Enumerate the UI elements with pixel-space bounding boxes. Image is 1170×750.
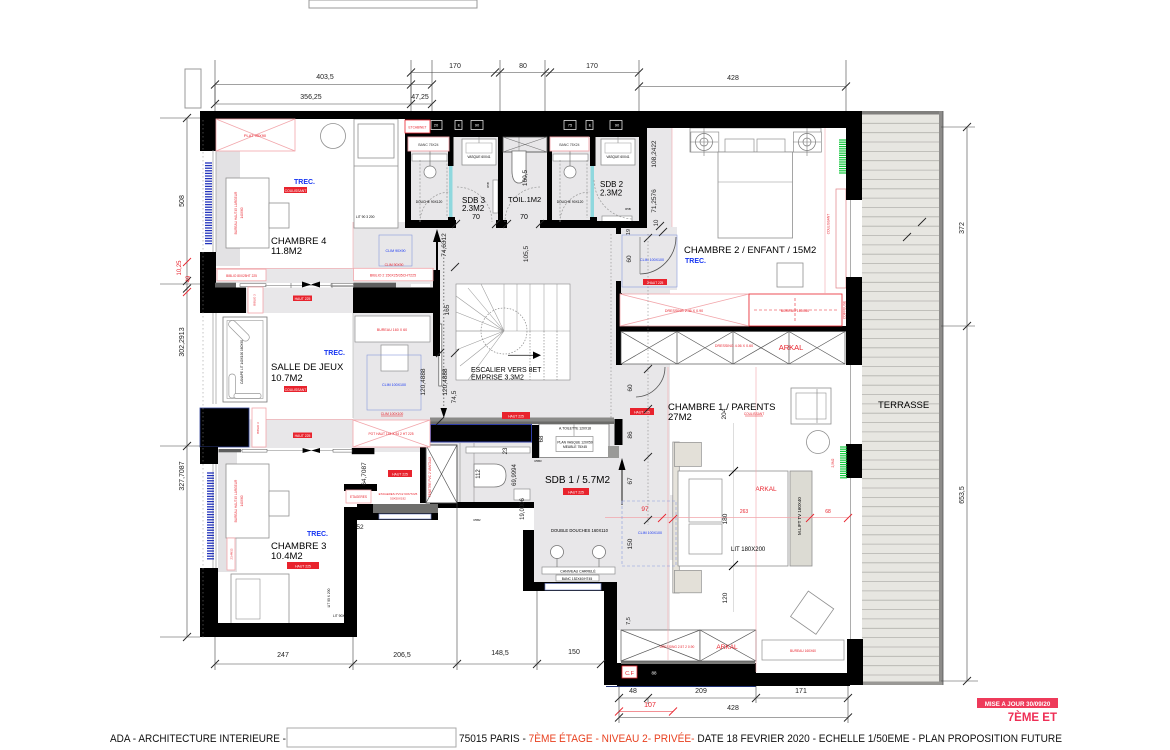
svg-text:108,2422: 108,2422 bbox=[651, 140, 658, 167]
svg-text:2,5M2: 2,5M2 bbox=[831, 458, 835, 467]
svg-text:BUREAU 160X60: BUREAU 160X60 bbox=[790, 649, 816, 653]
svg-text:A.TOILETTE 120X18: A.TOILETTE 120X18 bbox=[559, 427, 591, 431]
svg-text:E: E bbox=[458, 123, 461, 128]
svg-text:BUREAU HAUT45 LARGEUR: BUREAU HAUT45 LARGEUR bbox=[234, 191, 238, 234]
svg-text:112: 112 bbox=[476, 469, 482, 479]
svg-text:68: 68 bbox=[825, 509, 831, 515]
svg-text:DOUCHE 90X120: DOUCHE 90X120 bbox=[416, 200, 443, 204]
svg-text:2.3M2: 2.3M2 bbox=[462, 204, 485, 213]
svg-text:DRESSING 4.06 X 0.60: DRESSING 4.06 X 0.60 bbox=[715, 344, 753, 348]
svg-text:CLIM 100X100: CLIM 100X100 bbox=[381, 412, 404, 416]
svg-text:247: 247 bbox=[277, 652, 289, 659]
svg-text:69,9994: 69,9994 bbox=[512, 464, 518, 486]
svg-text:HAUT 225: HAUT 225 bbox=[568, 491, 584, 495]
svg-text:150: 150 bbox=[568, 649, 580, 656]
svg-text:LIT 90X200: LIT 90X200 bbox=[333, 614, 350, 618]
svg-text:372: 372 bbox=[959, 222, 966, 234]
svg-text:653,5: 653,5 bbox=[959, 486, 966, 504]
svg-text:CLIM 100X100: CLIM 100X100 bbox=[638, 531, 662, 535]
svg-text:FENETRE PVC 2 VANTAUX: FENETRE PVC 2 VANTAUX bbox=[428, 456, 432, 497]
svg-text:MEUBLE 75X45: MEUBLE 75X45 bbox=[563, 445, 587, 449]
svg-text:90: 90 bbox=[615, 123, 620, 128]
svg-text:52: 52 bbox=[356, 524, 364, 531]
svg-text:74,5: 74,5 bbox=[451, 390, 458, 403]
svg-text:BANC 152X40/HT45: BANC 152X40/HT45 bbox=[562, 577, 593, 581]
svg-text:HAUT 225: HAUT 225 bbox=[295, 297, 311, 301]
svg-text:PLAN VASQUE 120X50: PLAN VASQUE 120X50 bbox=[557, 441, 592, 445]
svg-text:ARKAL: ARKAL bbox=[779, 343, 804, 352]
svg-text:TREC.: TREC. bbox=[324, 350, 345, 357]
svg-text:DRESSING 2.46 X 0.90: DRESSING 2.46 X 0.90 bbox=[665, 309, 703, 313]
svg-text:ETAGERES PVC2 60X/T225: ETAGERES PVC2 60X/T225 bbox=[379, 492, 418, 496]
svg-text:50X50X192: 50X50X192 bbox=[390, 497, 406, 501]
svg-text:E: E bbox=[589, 123, 592, 128]
svg-text:120,4888: 120,4888 bbox=[442, 368, 449, 395]
svg-text:ADA - ARCHITECTURE INTERIEURE: ADA - ARCHITECTURE INTERIEURE - bbox=[110, 733, 286, 745]
svg-text:508: 508 bbox=[179, 195, 186, 207]
svg-text:BUREAU HAUT45 LARGEUR: BUREAU HAUT45 LARGEUR bbox=[234, 479, 238, 522]
svg-text:140X60: 140X60 bbox=[240, 207, 244, 218]
svg-text:VASQUE 60X41: VASQUE 60X41 bbox=[606, 155, 629, 159]
svg-text:2HAUT 225: 2HAUT 225 bbox=[647, 281, 664, 285]
svg-text:428: 428 bbox=[727, 705, 739, 712]
svg-text:120,4888: 120,4888 bbox=[420, 368, 427, 395]
svg-text:BUREAU 160X60: BUREAU 160X60 bbox=[781, 309, 809, 313]
svg-text:105,5: 105,5 bbox=[523, 245, 530, 262]
svg-text:60: 60 bbox=[627, 384, 634, 392]
svg-text:90: 90 bbox=[475, 123, 480, 128]
svg-text:HAUT 225: HAUT 225 bbox=[295, 565, 311, 569]
svg-text:SDB 1 / 5.7M2: SDB 1 / 5.7M2 bbox=[545, 475, 610, 486]
svg-text:10.7M2: 10.7M2 bbox=[271, 373, 303, 384]
svg-text:BIBLIO 3: BIBLIO 3 bbox=[253, 294, 257, 306]
svg-text:EMPRISE 3.3M2: EMPRISE 3.3M2 bbox=[471, 375, 524, 382]
svg-text:27M2: 27M2 bbox=[668, 412, 692, 423]
svg-text:BUREAU 160 X 60: BUREAU 160 X 60 bbox=[377, 328, 407, 332]
svg-text:170: 170 bbox=[586, 63, 598, 70]
svg-text:150: 150 bbox=[627, 538, 634, 549]
svg-text:BIBLIO 80X25HT 225: BIBLIO 80X25HT 225 bbox=[226, 274, 257, 278]
svg-text:20: 20 bbox=[434, 123, 439, 128]
svg-text:R5B: R5B bbox=[625, 207, 631, 211]
svg-text:49: 49 bbox=[186, 275, 192, 282]
svg-text:CANAPE LIT 140X190 160X90: CANAPE LIT 140X190 160X90 bbox=[240, 340, 244, 384]
svg-text:HAUT 225: HAUT 225 bbox=[295, 434, 311, 438]
svg-text:DOUBLE DOUCHES 160X110: DOUBLE DOUCHES 160X110 bbox=[551, 528, 609, 533]
svg-text:ESCALIER VERS 8ET: ESCALIER VERS 8ET bbox=[471, 367, 542, 374]
svg-text:428: 428 bbox=[727, 75, 739, 82]
svg-text:74,6312: 74,6312 bbox=[441, 233, 448, 257]
svg-text:CLIM 90X90: CLIM 90X90 bbox=[386, 249, 406, 253]
svg-text:302,2913: 302,2913 bbox=[179, 327, 186, 356]
svg-text:10: 10 bbox=[654, 219, 660, 226]
svg-text:CLIM 100X100: CLIM 100X100 bbox=[640, 258, 664, 262]
svg-text:86: 86 bbox=[627, 431, 634, 439]
svg-text:120: 120 bbox=[722, 592, 729, 603]
svg-text:403,5: 403,5 bbox=[316, 74, 334, 81]
svg-text:19: 19 bbox=[626, 229, 632, 235]
svg-text:COIFFEUSE: COIFFEUSE bbox=[843, 301, 847, 319]
svg-text:356,25: 356,25 bbox=[300, 94, 322, 101]
svg-text:10,25: 10,25 bbox=[177, 260, 183, 276]
svg-text:CLIM 90X90: CLIM 90X90 bbox=[385, 263, 404, 267]
svg-text:67: 67 bbox=[627, 477, 634, 485]
svg-text:BANC 75X24: BANC 75X24 bbox=[559, 143, 579, 147]
svg-text:107: 107 bbox=[644, 702, 656, 709]
svg-text:R5B: R5B bbox=[486, 182, 490, 188]
svg-text:2.3M2: 2.3M2 bbox=[600, 189, 623, 198]
svg-text:75: 75 bbox=[568, 123, 573, 128]
svg-text:70: 70 bbox=[472, 214, 480, 221]
svg-text:R5B3: R5B3 bbox=[535, 459, 542, 463]
svg-text:140X60: 140X60 bbox=[240, 495, 244, 506]
svg-text:CHAMBRE 2 / ENFANT / 15M2: CHAMBRE 2 / ENFANT / 15M2 bbox=[684, 245, 816, 256]
svg-text:327,7087: 327,7087 bbox=[179, 461, 186, 490]
svg-text:19,0006: 19,0006 bbox=[520, 498, 526, 520]
svg-text:HAUT 225: HAUT 225 bbox=[634, 411, 650, 415]
svg-text:204: 204 bbox=[721, 408, 728, 419]
svg-text:HAUT 225: HAUT 225 bbox=[508, 415, 524, 419]
svg-text:SALLE DE JEUX: SALLE DE JEUX bbox=[271, 362, 344, 373]
svg-text:60: 60 bbox=[626, 255, 633, 263]
svg-text:70: 70 bbox=[520, 214, 528, 221]
svg-text:23,4M13: 23,4M13 bbox=[230, 548, 234, 559]
svg-text:10.4M2: 10.4M2 bbox=[271, 551, 303, 562]
svg-text:TREC.: TREC. bbox=[294, 179, 315, 186]
svg-text:75015 PARIS - 7ÈME ÉTAGE - NIV: 75015 PARIS - 7ÈME ÉTAGE - NIVEAU 2- PRI… bbox=[459, 732, 1062, 745]
svg-text:R5B2: R5B2 bbox=[474, 518, 481, 522]
svg-text:C.F: C.F bbox=[625, 671, 635, 677]
svg-text:171: 171 bbox=[795, 688, 807, 695]
svg-text:CANIVEAU CARRELÉ: CANIVEAU CARRELÉ bbox=[560, 569, 596, 574]
svg-text:180: 180 bbox=[722, 513, 729, 524]
svg-text:80: 80 bbox=[519, 63, 527, 70]
svg-text:48: 48 bbox=[629, 688, 637, 695]
svg-text:HAUT 225: HAUT 225 bbox=[392, 473, 408, 477]
svg-text:BANC 75X24: BANC 75X24 bbox=[418, 143, 438, 147]
svg-text:170: 170 bbox=[449, 63, 461, 70]
svg-text:68: 68 bbox=[539, 435, 545, 442]
svg-text:263: 263 bbox=[740, 509, 749, 515]
svg-text:64,7087: 64,7087 bbox=[361, 462, 368, 486]
svg-text:ETAGERES: ETAGERES bbox=[350, 495, 367, 499]
svg-text:148,5: 148,5 bbox=[491, 650, 509, 657]
svg-text:BIBLIO 2 150X25/35CHT225: BIBLIO 2 150X25/35CHT225 bbox=[370, 274, 416, 278]
svg-text:ETCABINET: ETCABINET bbox=[409, 126, 427, 130]
svg-text:TERRASSE: TERRASSE bbox=[878, 400, 929, 411]
svg-text:160,5: 160,5 bbox=[522, 169, 529, 186]
svg-text:LIT 90 3 200: LIT 90 3 200 bbox=[356, 215, 375, 219]
svg-text:ARKAL: ARKAL bbox=[755, 486, 777, 493]
svg-text:VASQUE 60X41: VASQUE 60X41 bbox=[467, 155, 490, 159]
svg-text:47,25: 47,25 bbox=[411, 94, 429, 101]
svg-text:7ÈME ET: 7ÈME ET bbox=[1008, 711, 1057, 724]
svg-text:11.8M2: 11.8M2 bbox=[271, 246, 302, 257]
svg-text:7,5: 7,5 bbox=[626, 617, 632, 625]
svg-text:ARKAL: ARKAL bbox=[716, 644, 738, 651]
svg-text:CLIM 100X100: CLIM 100X100 bbox=[382, 383, 406, 387]
svg-text:209: 209 bbox=[695, 688, 707, 695]
svg-text:TREC.: TREC. bbox=[307, 531, 328, 538]
svg-text:23: 23 bbox=[503, 447, 509, 454]
svg-text:PLAT 90X90: PLAT 90X90 bbox=[244, 133, 267, 138]
svg-text:MISE A JOUR 30/09/20: MISE A JOUR 30/09/20 bbox=[985, 701, 1051, 708]
svg-text:DOUCHE 90X120: DOUCHE 90X120 bbox=[557, 200, 584, 204]
svg-text:TREC.: TREC. bbox=[685, 258, 706, 265]
svg-text:COULISSANT: COULISSANT bbox=[285, 388, 307, 392]
svg-text:88: 88 bbox=[651, 671, 657, 676]
svg-text:206,5: 206,5 bbox=[393, 652, 411, 659]
svg-text:71,2576: 71,2576 bbox=[651, 189, 658, 213]
svg-text:LIT 180X200: LIT 180X200 bbox=[731, 547, 766, 553]
svg-text:COULISSANT: COULISSANT bbox=[827, 214, 831, 234]
svg-text:M.LIFT TV 160X40: M.LIFT TV 160X40 bbox=[797, 497, 802, 535]
svg-text:LIT 90 X 200: LIT 90 X 200 bbox=[327, 588, 331, 607]
svg-text:DRESSING 2.57 2 0.90: DRESSING 2.57 2 0.90 bbox=[660, 645, 695, 649]
svg-text:POT HAUT 144 X 54 2 HT 225: POT HAUT 144 X 54 2 HT 225 bbox=[368, 432, 413, 436]
svg-text:TOIL.1M2: TOIL.1M2 bbox=[508, 195, 541, 204]
svg-text:165: 165 bbox=[444, 304, 451, 315]
svg-text:BIBLIO 3: BIBLIO 3 bbox=[256, 422, 260, 434]
